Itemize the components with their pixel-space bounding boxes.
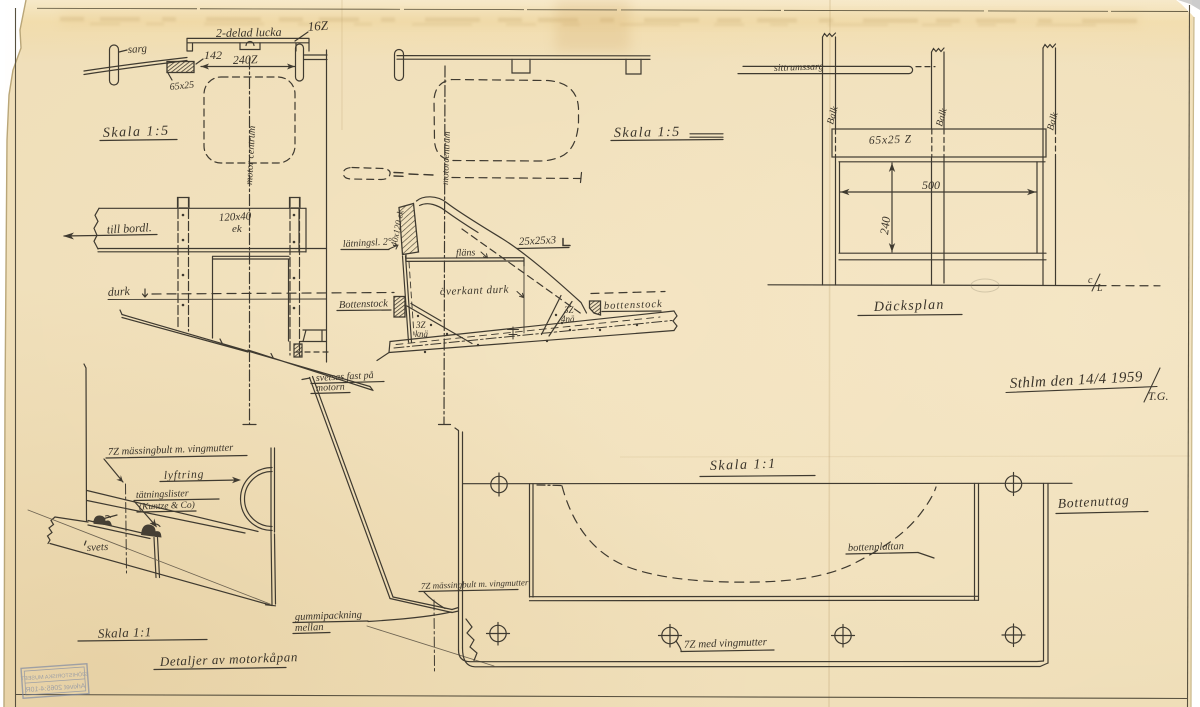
svg-text:till bordl.: till bordl. (106, 220, 152, 236)
svg-text:svets: svets (87, 541, 109, 554)
svg-text:bottenplattan: bottenplattan (848, 541, 904, 554)
svg-text:120x40: 120x40 (219, 210, 252, 224)
svg-text:T.G.: T.G. (1148, 389, 1168, 403)
svg-text:240Z: 240Z (233, 52, 258, 67)
svg-text:ek: ek (232, 223, 243, 235)
svg-text:(Kuntze & Co): (Kuntze & Co) (139, 500, 195, 513)
svg-text:L: L (1096, 283, 1103, 294)
svg-text:25x25x3: 25x25x3 (519, 234, 557, 248)
svg-text:65x25 Z: 65x25 Z (869, 134, 912, 147)
svg-text:bottenstock: bottenstock (604, 299, 663, 312)
svg-text:durk: durk (107, 284, 130, 299)
svg-text:Skala 1:1: Skala 1:1 (710, 457, 777, 474)
svg-text:motorcentrum: motorcentrum (441, 131, 453, 185)
svg-text:överkant durk: överkant durk (440, 284, 510, 298)
svg-text:500: 500 (922, 178, 940, 192)
svg-text:c: c (1088, 275, 1093, 286)
svg-text:Skala 1:5: Skala 1:5 (103, 124, 170, 141)
svg-text:Bottenstock: Bottenstock (339, 298, 389, 311)
svg-text:knä: knä (415, 329, 428, 339)
svg-text:240: 240 (877, 216, 893, 236)
svg-text:sittrumssarg: sittrumssarg (774, 61, 824, 74)
svg-text:sarg: sarg (127, 43, 147, 56)
svg-text:lyftring: lyftring (164, 469, 205, 482)
svg-text:Skala 1:1: Skala 1:1 (98, 624, 152, 641)
svg-text:fläns: fläns (456, 247, 476, 259)
svg-text:Däcksplan: Däcksplan (873, 298, 945, 315)
svg-text:4nä: 4nä (561, 314, 575, 324)
svg-text:142: 142 (204, 48, 222, 62)
svg-text:16Z: 16Z (307, 18, 329, 34)
svg-text:Skala 1:5: Skala 1:5 (614, 125, 681, 141)
svg-text:2-delad lucka: 2-delad lucka (216, 25, 282, 40)
